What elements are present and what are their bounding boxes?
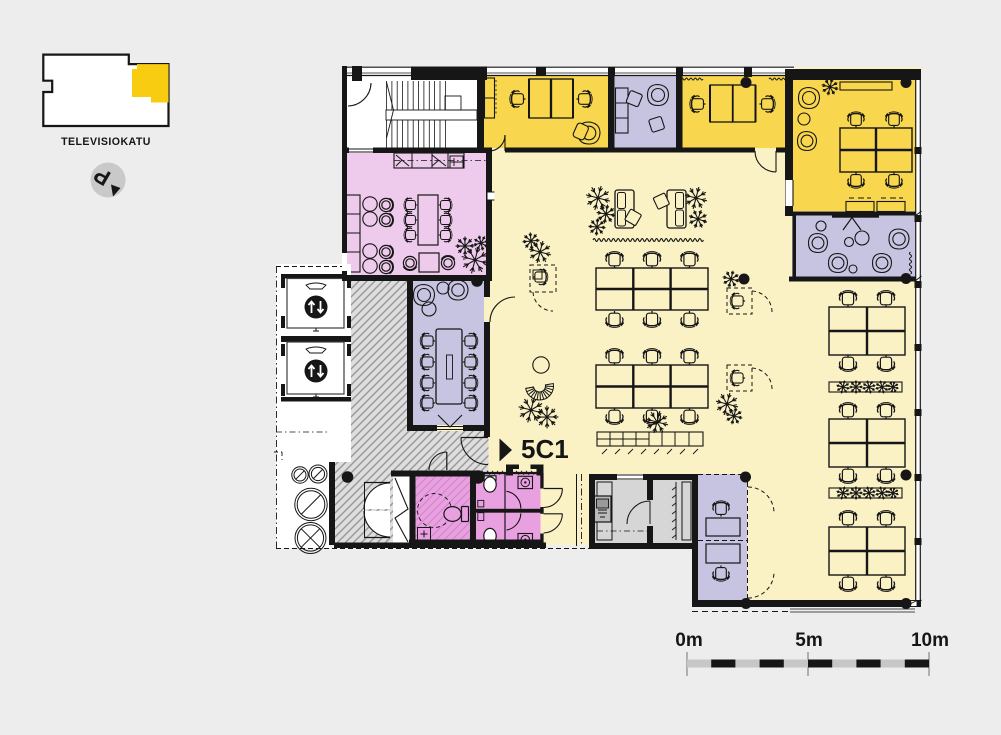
svg-text:10m: 10m	[911, 630, 949, 651]
svg-text:5m: 5m	[795, 630, 822, 651]
svg-text:TELEVISIOKATU: TELEVISIOKATU	[61, 136, 151, 148]
svg-text:5C1: 5C1	[521, 434, 569, 464]
svg-text:0m: 0m	[675, 630, 702, 651]
